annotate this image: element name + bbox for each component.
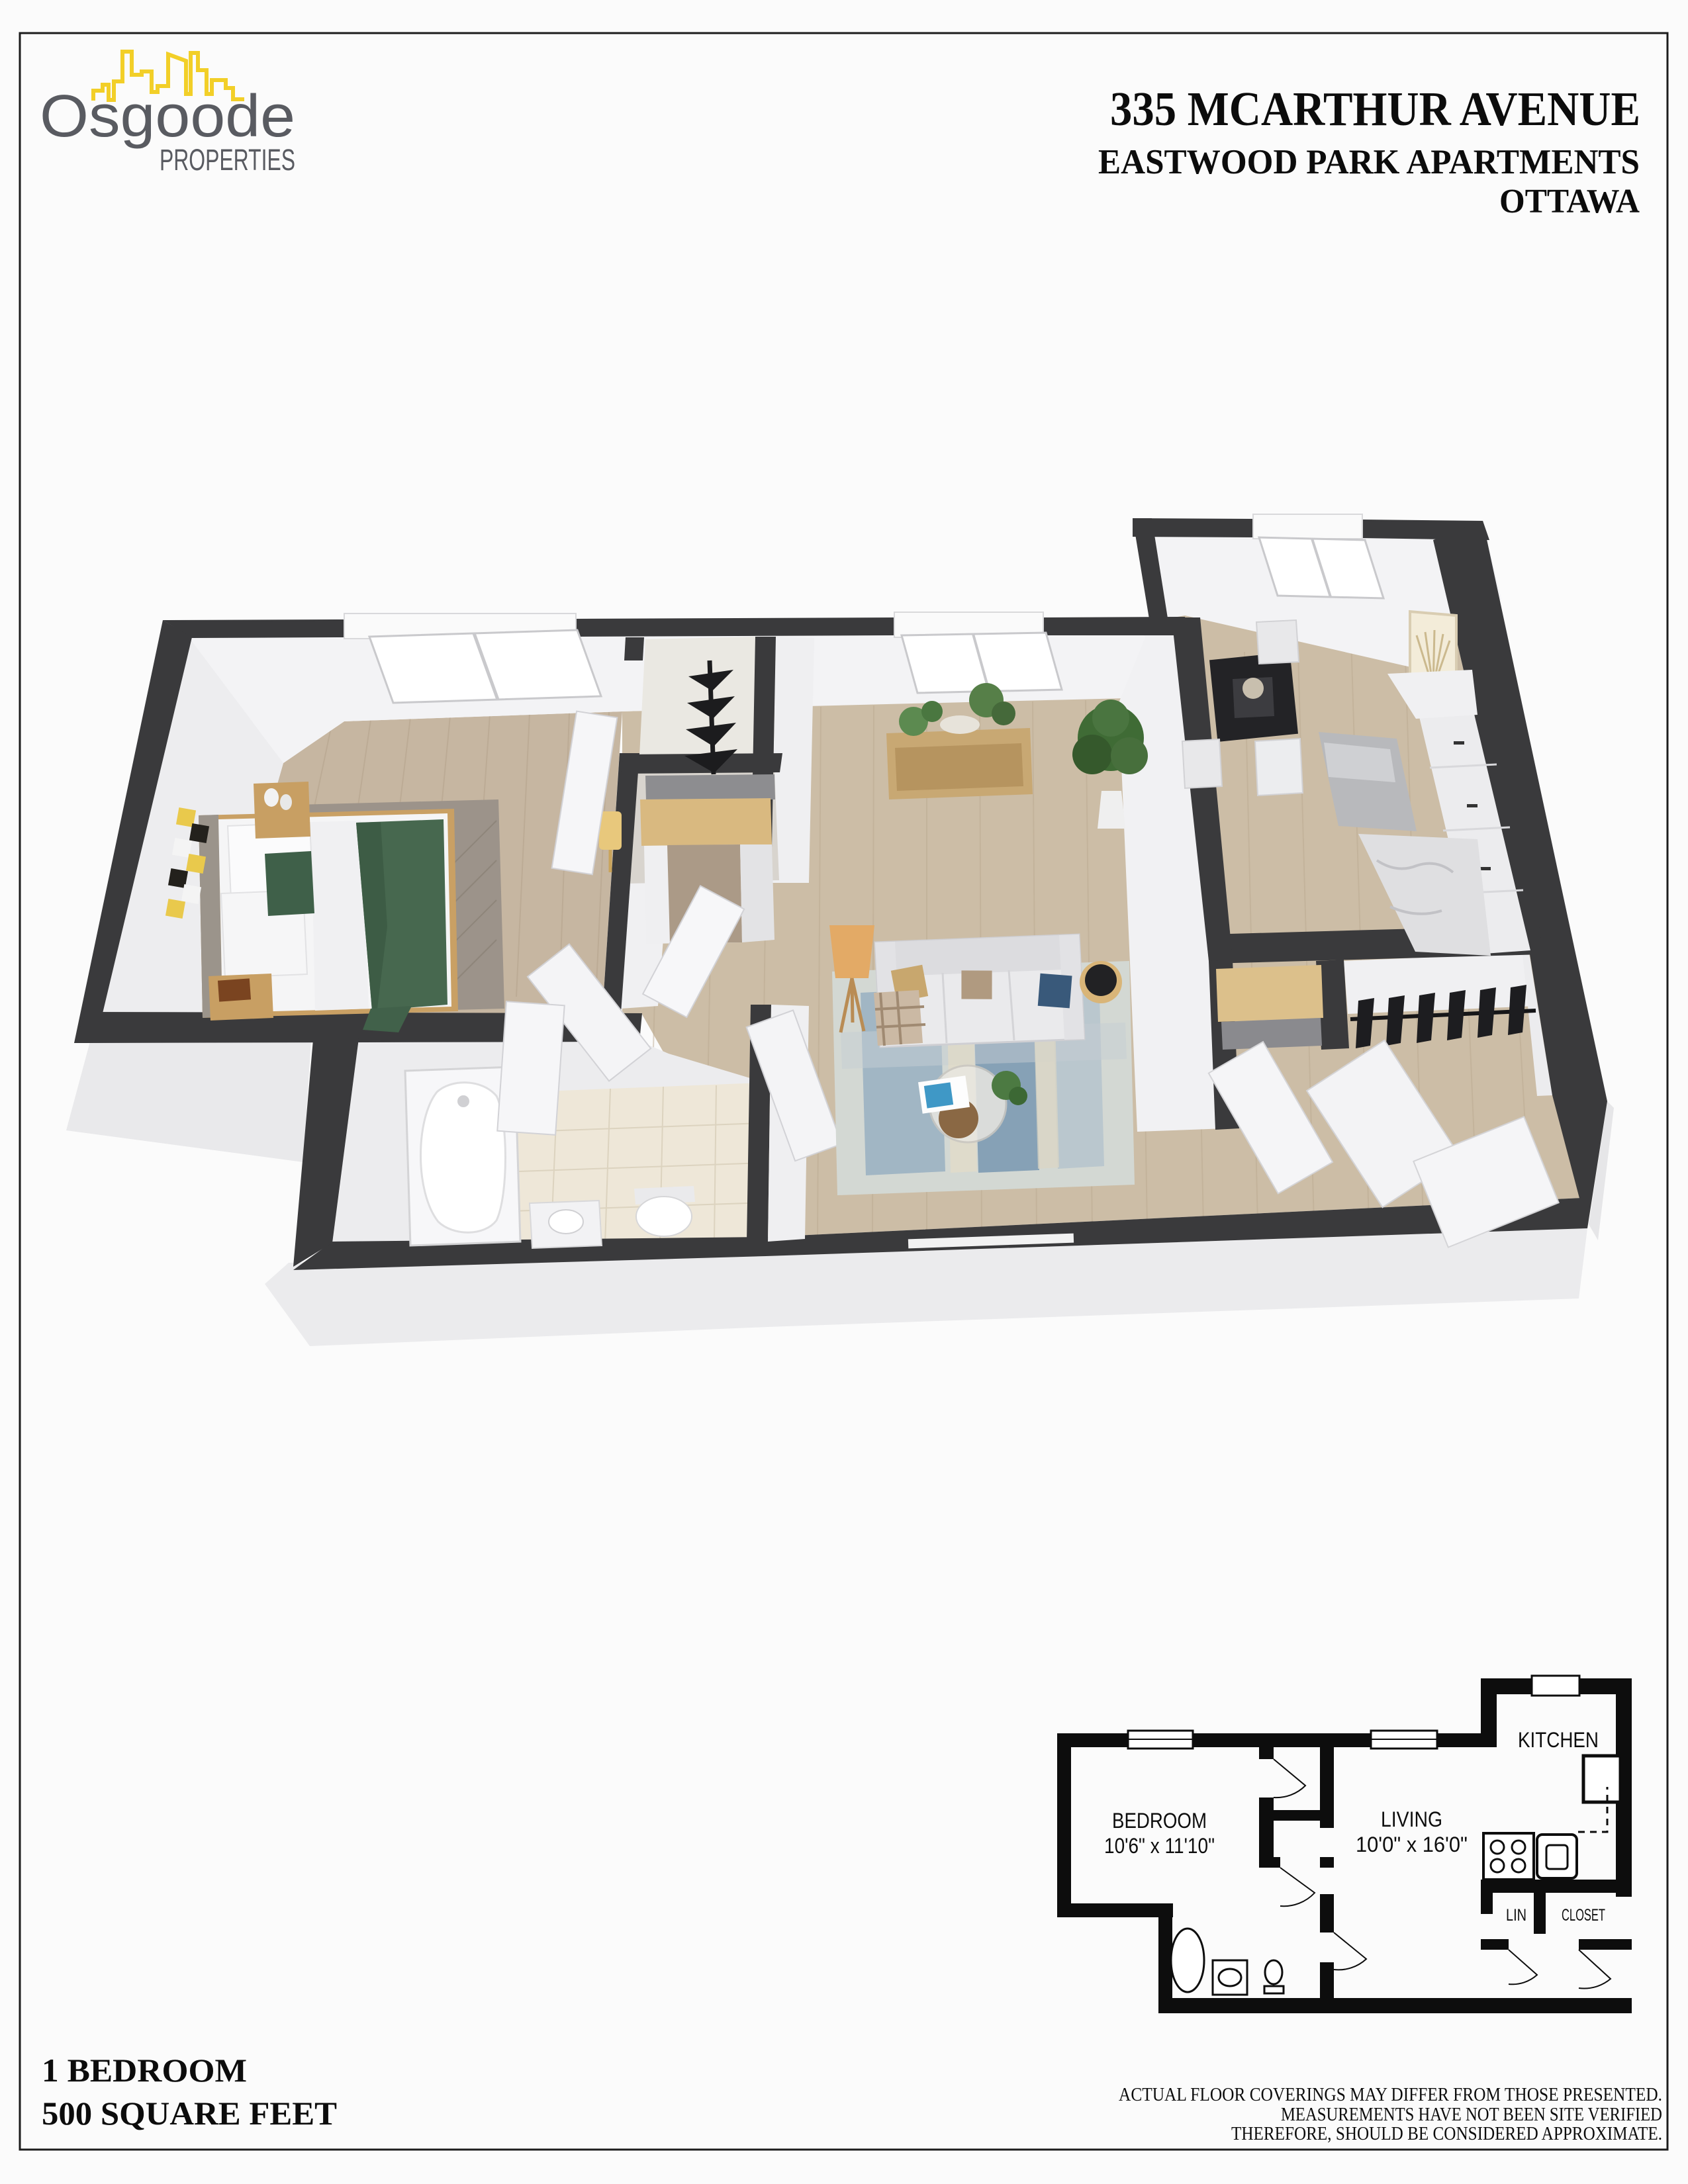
svg-text:OTTAWA: OTTAWA bbox=[1499, 183, 1640, 220]
svg-text:335 MCARTHUR AVENUE: 335 MCARTHUR AVENUE bbox=[1110, 82, 1640, 136]
svg-text:KITCHEN: KITCHEN bbox=[1518, 1728, 1599, 1752]
svg-text:500 SQUARE FEET: 500 SQUARE FEET bbox=[42, 2095, 337, 2132]
svg-text:THEREFORE, SHOULD BE CONSIDERE: THEREFORE, SHOULD BE CONSIDERED APPROXIM… bbox=[1231, 2124, 1662, 2144]
svg-text:BEDROOM: BEDROOM bbox=[1112, 1809, 1207, 1833]
svg-text:LIN: LIN bbox=[1506, 1906, 1526, 1925]
svg-text:1 BEDROOM: 1 BEDROOM bbox=[42, 2052, 247, 2089]
svg-text:10'6" x 11'10": 10'6" x 11'10" bbox=[1104, 1834, 1215, 1858]
svg-text:PROPERTIES: PROPERTIES bbox=[160, 143, 295, 177]
svg-text:Osgoode: Osgoode bbox=[40, 83, 295, 150]
svg-text:ACTUAL FLOOR COVERINGS MAY DIF: ACTUAL FLOOR COVERINGS MAY DIFFER FROM T… bbox=[1119, 2085, 1662, 2105]
svg-text:CLOSET: CLOSET bbox=[1562, 1906, 1605, 1925]
svg-text:EASTWOOD PARK APARTMENTS: EASTWOOD PARK APARTMENTS bbox=[1098, 143, 1640, 181]
svg-text:10'0" x 16'0": 10'0" x 16'0" bbox=[1356, 1833, 1468, 1856]
svg-text:LIVING: LIVING bbox=[1381, 1807, 1442, 1831]
svg-text:MEASUREMENTS HAVE NOT BEEN SIT: MEASUREMENTS HAVE NOT BEEN SITE VERIFIED bbox=[1281, 2105, 1662, 2125]
